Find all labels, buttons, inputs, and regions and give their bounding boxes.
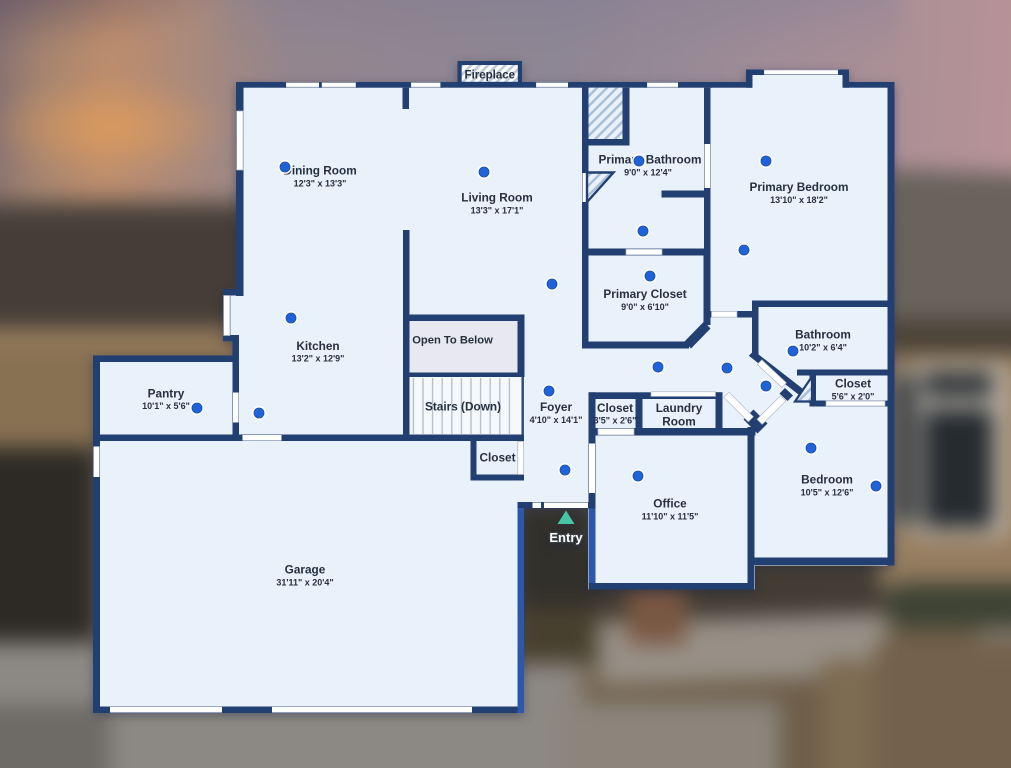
- svg-text:Living Room: Living Room: [461, 191, 532, 205]
- svg-text:31'11" x 20'4": 31'11" x 20'4": [276, 578, 333, 588]
- svg-text:Pantry: Pantry: [148, 387, 185, 401]
- svg-text:Primary Bathroom: Primary Bathroom: [599, 153, 702, 167]
- svg-text:Dining Room: Dining Room: [283, 164, 356, 178]
- svg-text:9'0" x 6'10": 9'0" x 6'10": [621, 302, 669, 312]
- svg-text:Laundry: Laundry: [656, 401, 703, 415]
- svg-text:Kitchen: Kitchen: [296, 339, 339, 353]
- svg-text:Fireplace: Fireplace: [465, 70, 516, 82]
- svg-text:Room: Room: [662, 415, 695, 429]
- svg-text:Entry: Entry: [549, 530, 583, 545]
- svg-text:13'3" x 17'1": 13'3" x 17'1": [471, 206, 524, 216]
- svg-text:Primary Bedroom: Primary Bedroom: [750, 180, 849, 194]
- svg-text:12'3" x 13'3": 12'3" x 13'3": [294, 179, 347, 189]
- svg-text:Garage: Garage: [285, 563, 326, 577]
- svg-text:Stairs (Down): Stairs (Down): [425, 400, 501, 414]
- svg-text:11'10" x 11'5": 11'10" x 11'5": [642, 512, 699, 522]
- svg-text:Bathroom: Bathroom: [795, 328, 851, 342]
- svg-text:5'6" x 2'0": 5'6" x 2'0": [832, 392, 875, 402]
- svg-text:10'2" x 6'4": 10'2" x 6'4": [799, 343, 847, 353]
- svg-text:10'1" x 5'6": 10'1" x 5'6": [142, 401, 190, 411]
- svg-text:Bedroom: Bedroom: [801, 473, 853, 487]
- svg-text:9'0" x 12'4": 9'0" x 12'4": [624, 168, 672, 178]
- svg-text:Office: Office: [653, 497, 687, 511]
- svg-text:Closet: Closet: [597, 401, 633, 415]
- svg-text:Foyer: Foyer: [540, 400, 573, 414]
- svg-text:Primary Closet: Primary Closet: [603, 287, 686, 301]
- svg-text:3'5" x 2'6": 3'5" x 2'6": [594, 416, 637, 426]
- svg-text:4'10" x 14'1": 4'10" x 14'1": [530, 415, 583, 425]
- svg-text:13'2" x 12'9": 13'2" x 12'9": [292, 354, 345, 364]
- svg-text:10'5" x 12'6": 10'5" x 12'6": [801, 488, 854, 498]
- svg-text:Open To Below: Open To Below: [412, 335, 493, 347]
- svg-text:Closet: Closet: [479, 451, 515, 465]
- svg-text:Closet: Closet: [835, 377, 871, 391]
- svg-text:13'10" x 18'2": 13'10" x 18'2": [770, 195, 828, 205]
